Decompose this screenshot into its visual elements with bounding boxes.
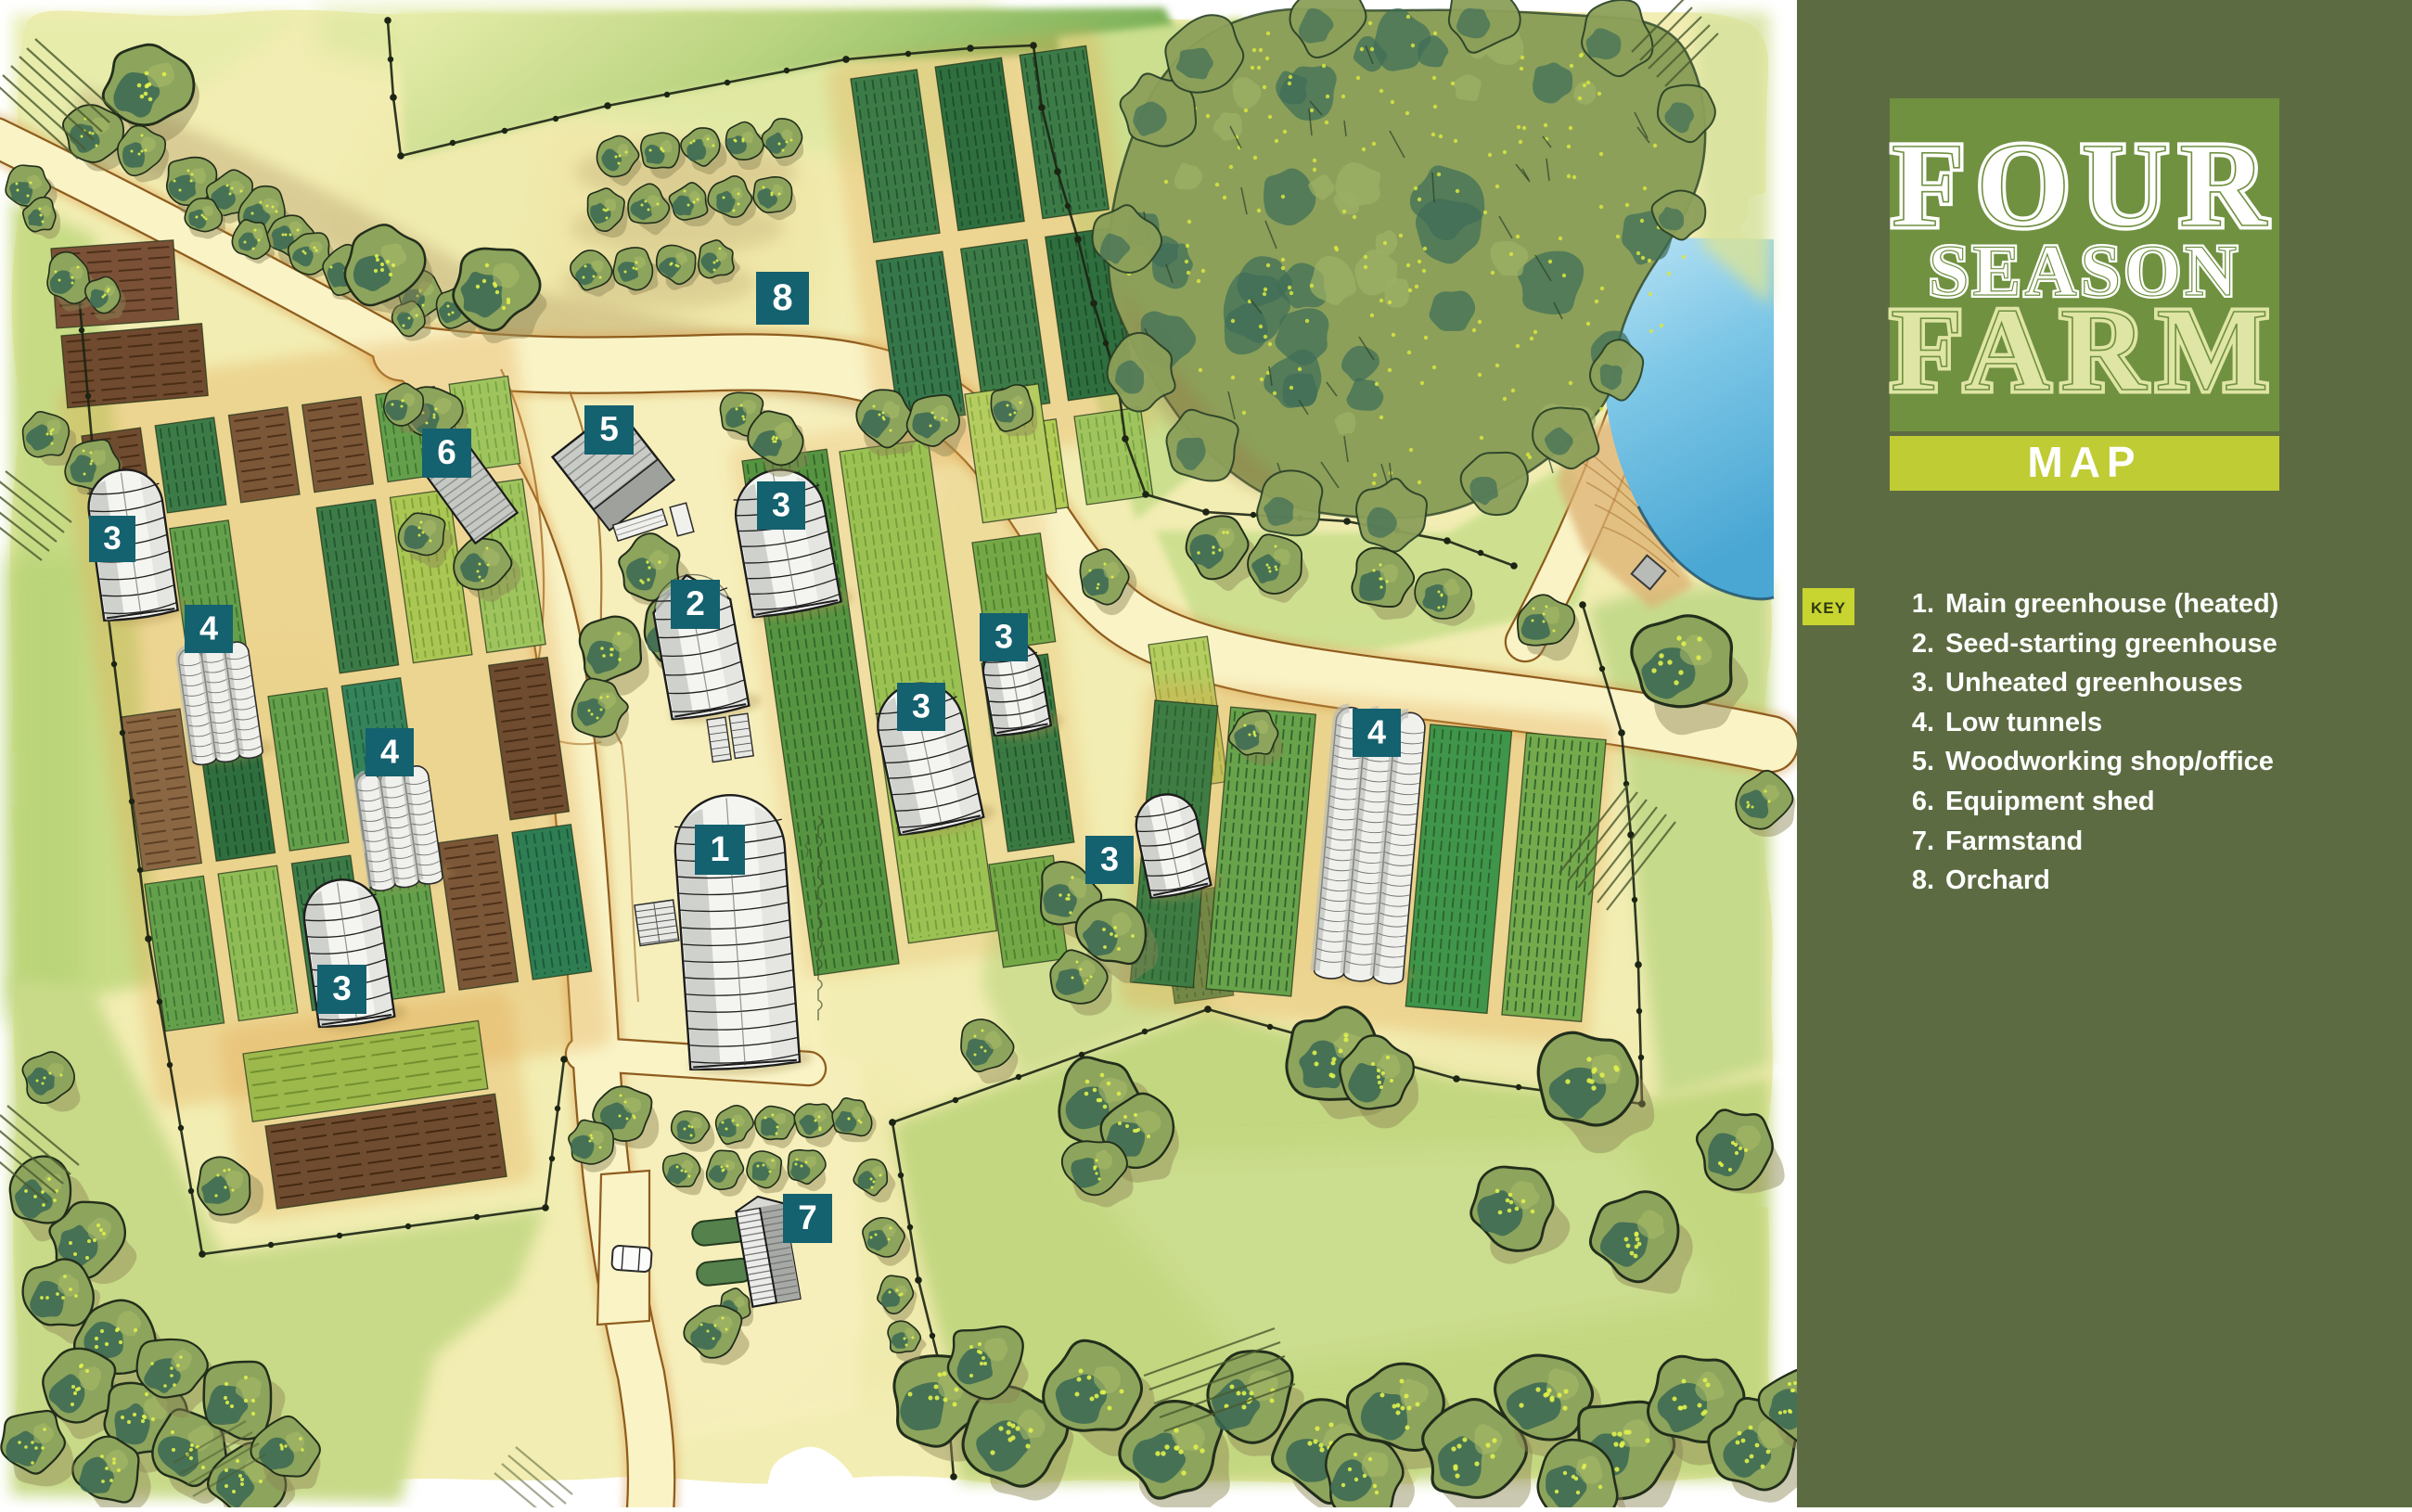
svg-text:2: 2 bbox=[686, 584, 705, 622]
svg-text:5: 5 bbox=[599, 410, 619, 448]
svg-text:FARM: FARM bbox=[1891, 284, 2278, 416]
svg-text:Low tunnels: Low tunnels bbox=[1945, 708, 2102, 737]
svg-text:6: 6 bbox=[437, 433, 456, 471]
svg-text:7: 7 bbox=[798, 1198, 817, 1237]
svg-text:1.: 1. bbox=[1912, 589, 1934, 619]
svg-text:3: 3 bbox=[772, 485, 790, 523]
svg-text:Main greenhouse (heated): Main greenhouse (heated) bbox=[1945, 589, 2278, 619]
svg-text:3: 3 bbox=[994, 617, 1013, 655]
svg-text:3: 3 bbox=[1100, 839, 1119, 878]
svg-text:1: 1 bbox=[710, 830, 729, 869]
svg-text:8: 8 bbox=[772, 277, 792, 318]
svg-text:4.: 4. bbox=[1912, 708, 1934, 737]
svg-text:4: 4 bbox=[380, 732, 399, 770]
svg-text:Farmstand: Farmstand bbox=[1945, 826, 2083, 856]
svg-text:Equipment shed: Equipment shed bbox=[1945, 787, 2155, 816]
svg-text:6.: 6. bbox=[1912, 787, 1934, 816]
svg-text:3.: 3. bbox=[1912, 668, 1934, 698]
svg-text:3: 3 bbox=[103, 520, 121, 557]
svg-text:4: 4 bbox=[199, 609, 218, 647]
svg-text:KEY: KEY bbox=[1811, 599, 1846, 617]
svg-text:Seed-starting greenhouse: Seed-starting greenhouse bbox=[1945, 629, 2277, 659]
svg-text:3: 3 bbox=[912, 686, 930, 724]
svg-text:Orchard: Orchard bbox=[1945, 865, 2050, 895]
svg-text:8.: 8. bbox=[1912, 865, 1934, 895]
svg-text:Unheated greenhouses: Unheated greenhouses bbox=[1945, 668, 2243, 698]
svg-text:MAP: MAP bbox=[2027, 438, 2141, 486]
svg-text:2.: 2. bbox=[1912, 629, 1934, 659]
svg-text:Woodworking shop/office: Woodworking shop/office bbox=[1945, 747, 2274, 776]
svg-text:5.: 5. bbox=[1912, 747, 1934, 776]
svg-text:3: 3 bbox=[332, 969, 352, 1007]
svg-text:7.: 7. bbox=[1912, 826, 1934, 856]
svg-text:4: 4 bbox=[1367, 712, 1386, 750]
